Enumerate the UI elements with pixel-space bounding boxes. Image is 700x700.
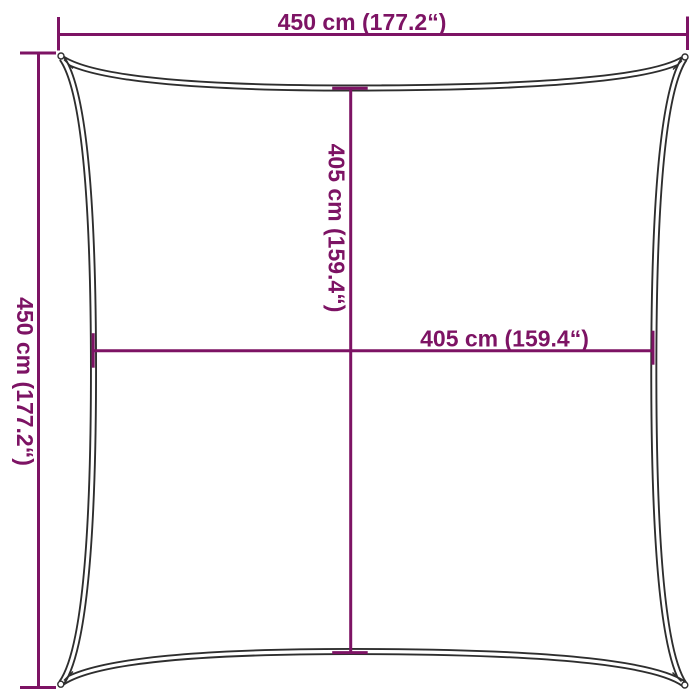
svg-text:405 cm (159.4“): 405 cm (159.4“) bbox=[324, 144, 350, 313]
svg-text:405 cm (159.4“): 405 cm (159.4“) bbox=[420, 326, 589, 352]
svg-text:450 cm (177.2“): 450 cm (177.2“) bbox=[12, 297, 38, 466]
svg-text:450 cm (177.2“): 450 cm (177.2“) bbox=[278, 9, 447, 35]
